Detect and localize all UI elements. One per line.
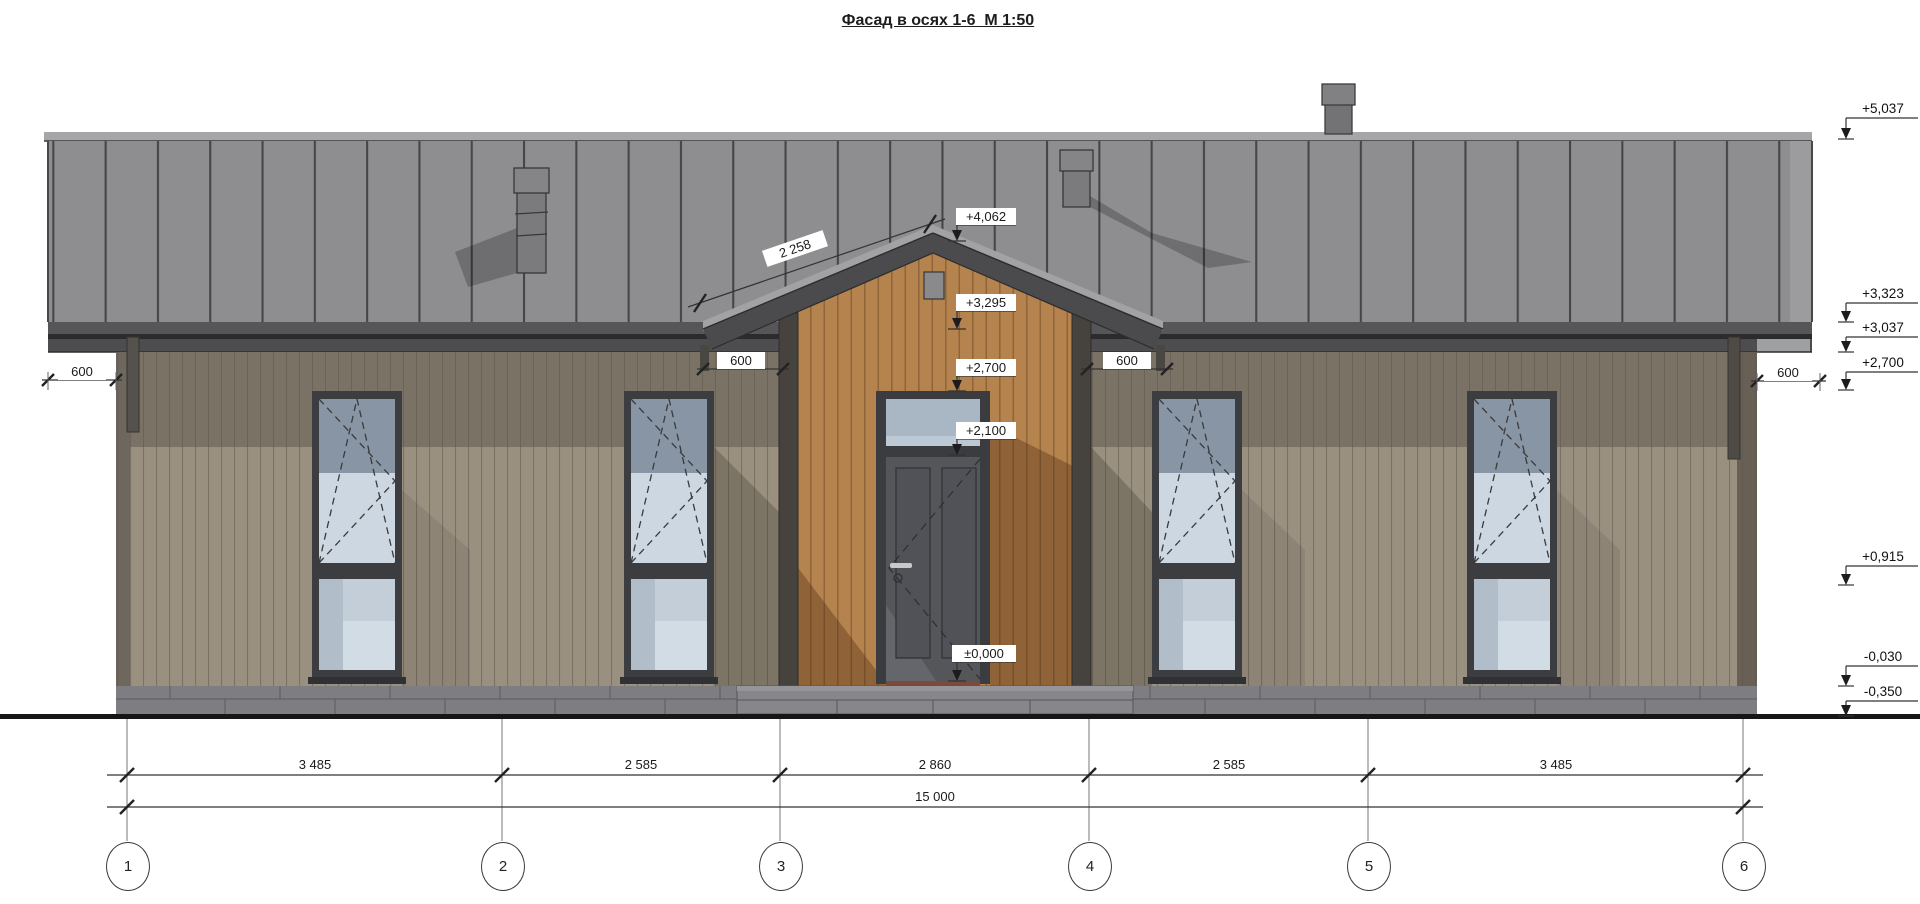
- elevation-mark: +5,037: [1848, 101, 1918, 117]
- slope-dimension: [688, 215, 945, 312]
- axis-bubble: 4: [1068, 842, 1112, 891]
- elevation-mark: +3,037: [1848, 320, 1918, 336]
- elevation-mark: +3,323: [1848, 286, 1918, 302]
- elevation-mark: +2,700: [956, 359, 1016, 376]
- facade-drawing: Фасад в осях 1-6 М 1:50 +5,037 +3,323 +3…: [0, 0, 1920, 904]
- axis-bubble: 3: [759, 842, 803, 891]
- dimension-label: 3 485: [275, 757, 355, 773]
- axis-bubble: 2: [481, 842, 525, 891]
- bottom-dimensions: [107, 719, 1763, 841]
- dimension-label: 2 585: [1189, 757, 1269, 773]
- elevation-mark: +4,062: [956, 208, 1016, 225]
- elevation-mark: +3,295: [956, 294, 1016, 311]
- elevation-mark: -0,350: [1848, 684, 1918, 700]
- elevation-mark: +2,700: [1848, 355, 1918, 371]
- axis-bubble: 1: [106, 842, 150, 891]
- dimension-label-600: 600: [1764, 364, 1812, 381]
- dimension-label: 3 485: [1516, 757, 1596, 773]
- dimension-label-600: 600: [1103, 352, 1151, 369]
- dimension-label-600: 600: [717, 352, 765, 369]
- drawing-title: Фасад в осях 1-6 М 1:50: [768, 12, 1108, 30]
- elevation-mark: ±0,000: [952, 645, 1016, 662]
- elevation-arrows: [952, 128, 1851, 716]
- elevation-mark: -0,030: [1848, 649, 1918, 665]
- elevation-marker-lines: [1838, 118, 1918, 716]
- elevation-mark: +0,915: [1848, 549, 1918, 565]
- dimension-label: 2 585: [601, 757, 681, 773]
- axis-bubble: 6: [1722, 842, 1766, 891]
- dimension-label-600: 600: [58, 363, 106, 380]
- elevation-mark: +2,100: [956, 422, 1016, 439]
- dimension-label: 2 860: [895, 757, 975, 773]
- overhang-dimensions: [42, 363, 1826, 391]
- axis-bubble: 5: [1347, 842, 1391, 891]
- dimension-label-total: 15 000: [895, 789, 975, 805]
